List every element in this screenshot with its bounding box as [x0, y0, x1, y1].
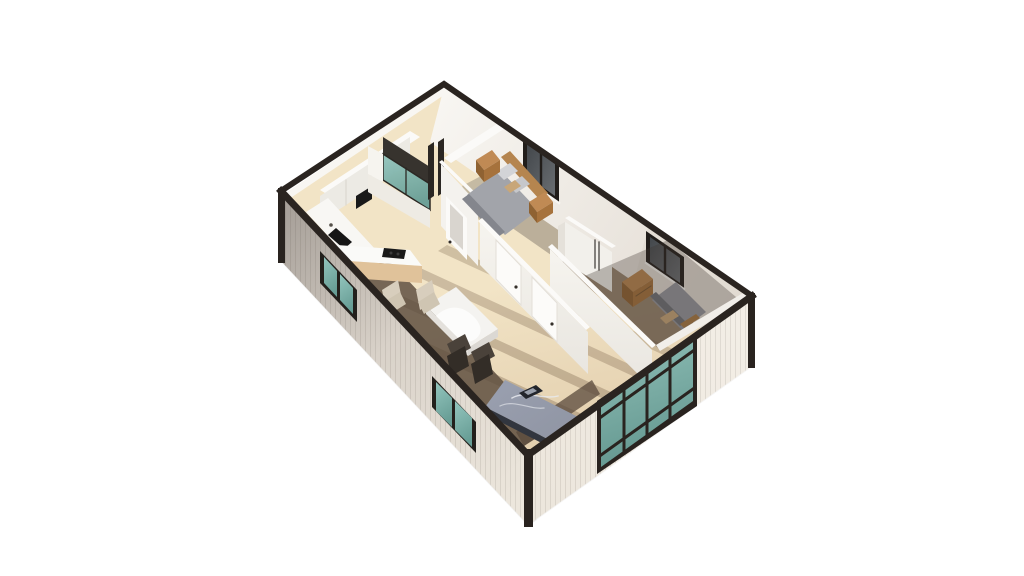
corner-post-east [748, 293, 755, 368]
bathroom-door-knob [449, 241, 452, 244]
bedroom1-door-knob [514, 285, 517, 288]
sink-faucet [329, 223, 333, 227]
closet-door-knob [550, 322, 553, 325]
cooktop-burner-2 [397, 253, 400, 256]
shape-layer [278, 84, 759, 527]
floor-plan-render [0, 0, 1024, 576]
shower-right-edge [428, 142, 434, 200]
floor-plan-page [0, 0, 1024, 576]
cooktop-burner-1 [390, 252, 393, 255]
corner-post-south [524, 449, 533, 527]
